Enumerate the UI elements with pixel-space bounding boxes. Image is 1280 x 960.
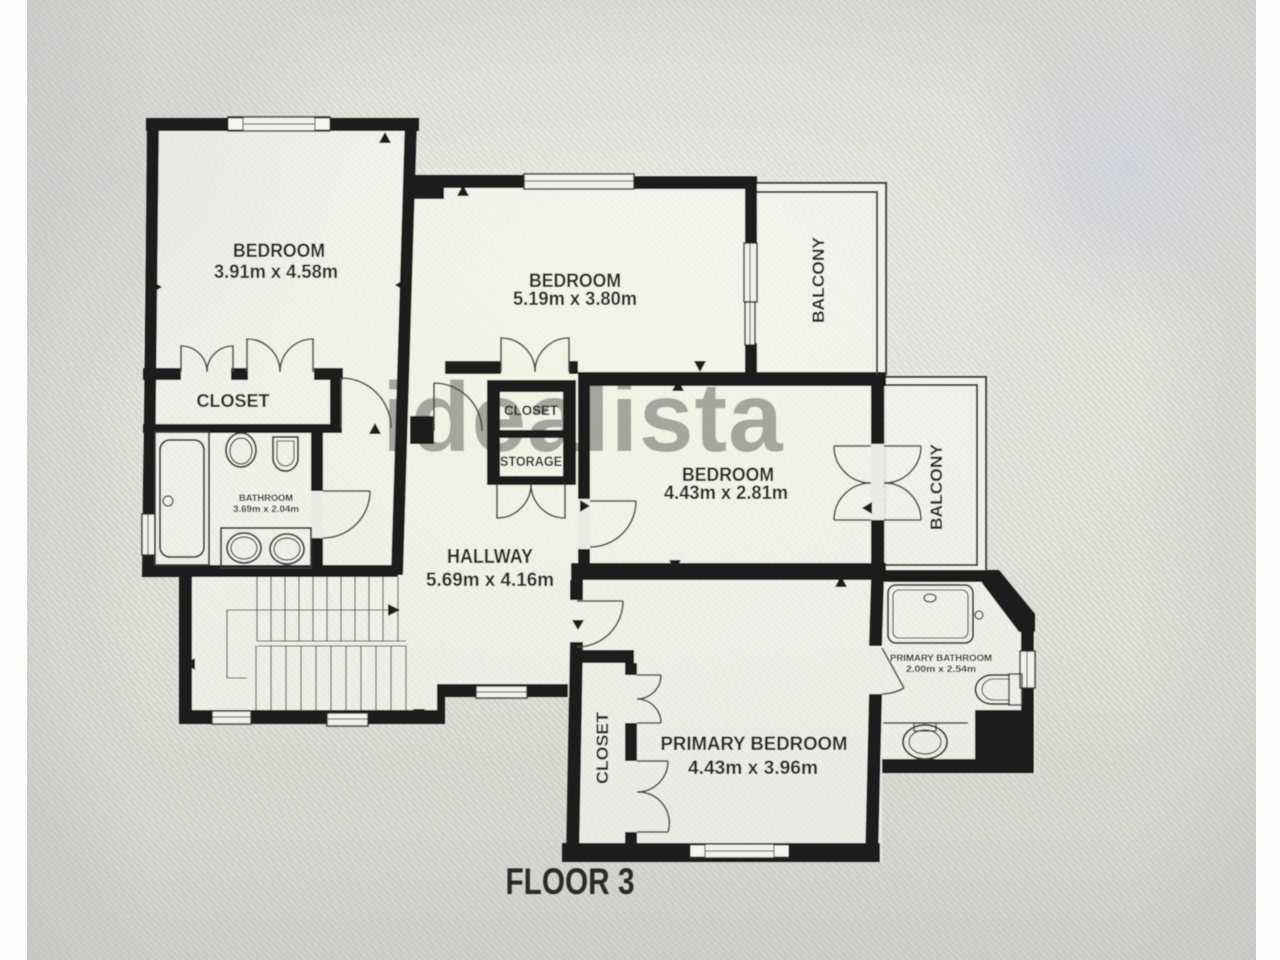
svg-text:CLOSET: CLOSET: [197, 391, 270, 411]
svg-text:3.69m x 2.04m: 3.69m x 2.04m: [233, 504, 299, 514]
svg-text:HALLWAY: HALLWAY: [447, 546, 534, 568]
svg-text:4.43m x 2.81m: 4.43m x 2.81m: [664, 482, 788, 504]
svg-text:CLOSET: CLOSET: [504, 403, 559, 418]
svg-text:PRIMARY BEDROOM: PRIMARY BEDROOM: [661, 733, 848, 755]
svg-text:BALCONY: BALCONY: [927, 443, 946, 530]
svg-text:FLOOR 3: FLOOR 3: [506, 861, 635, 902]
svg-text:STORAGE: STORAGE: [500, 454, 562, 469]
svg-text:BEDROOM: BEDROOM: [233, 240, 325, 262]
svg-text:CLOSET: CLOSET: [593, 711, 612, 784]
svg-text:5.69m x 4.16m: 5.69m x 4.16m: [426, 569, 554, 591]
svg-text:4.43m x 3.96m: 4.43m x 3.96m: [688, 757, 818, 779]
svg-text:3.91m x 4.58m: 3.91m x 4.58m: [214, 261, 338, 283]
svg-text:PRIMARY BATHROOM: PRIMARY BATHROOM: [890, 653, 992, 664]
svg-text:5.19m x 3.80m: 5.19m x 3.80m: [513, 288, 637, 310]
svg-text:BALCONY: BALCONY: [809, 236, 828, 323]
svg-text:BATHROOM: BATHROOM: [239, 493, 293, 504]
svg-text:2.00m x 2.54m: 2.00m x 2.54m: [906, 664, 976, 674]
